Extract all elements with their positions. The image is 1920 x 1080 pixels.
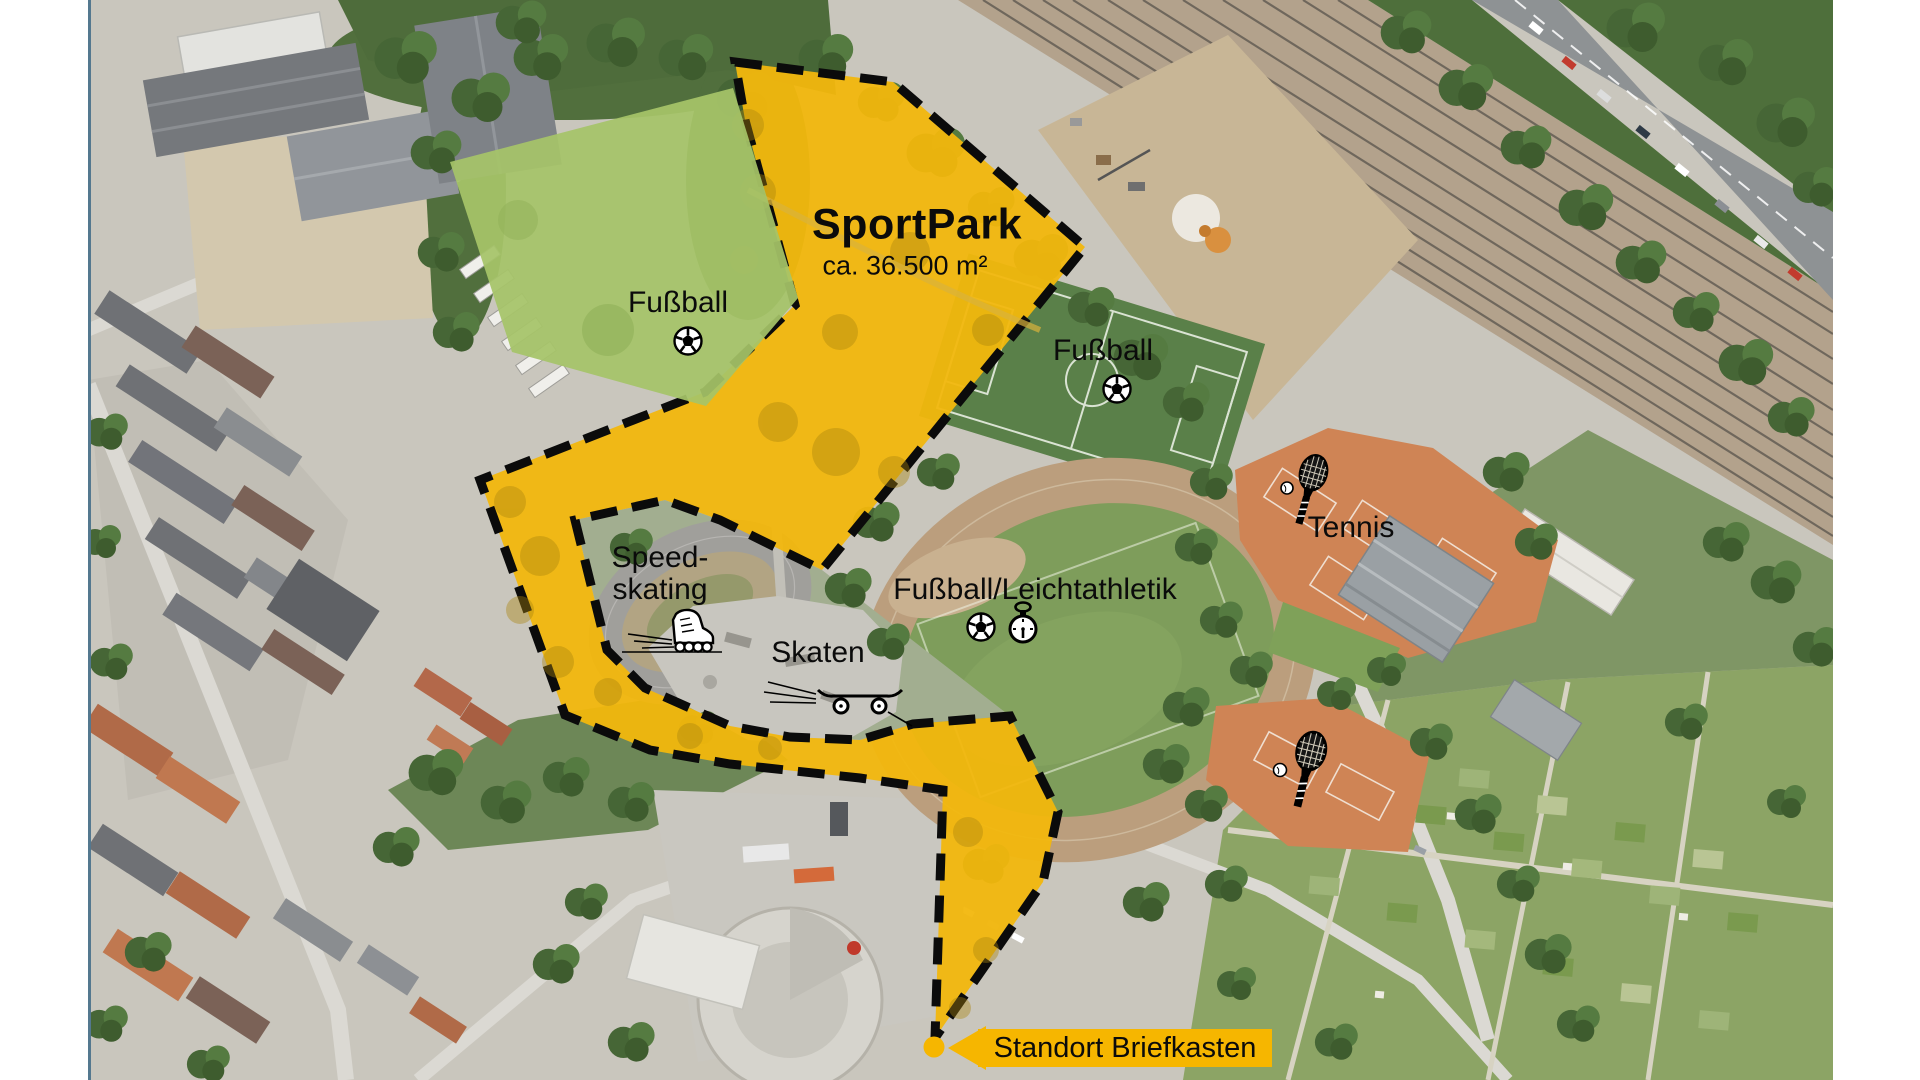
mailbox-callout: Standort Briefkasten: [978, 1029, 1272, 1067]
sportpark-area-label: ca. 36.500 m²: [822, 251, 987, 282]
label-fussball-west: Fußball: [628, 286, 728, 320]
label-tennis: Tennis: [1308, 511, 1395, 545]
soccer-ball-icon: [968, 614, 995, 641]
label-stadium: Fußball/Leichtathletik: [893, 573, 1176, 607]
label-speedskating-line1: Speed-: [612, 542, 709, 574]
soccer-ball-icon: [1104, 376, 1131, 403]
aerial-map: SportPark ca. 36.500 m² Fußball Fußball …: [88, 0, 1833, 1080]
label-speedskating-line2: skating: [612, 574, 709, 606]
screenshot: SportPark ca. 36.500 m² Fußball Fußball …: [0, 0, 1920, 1080]
sportpark-title: SportPark: [812, 201, 1022, 250]
location-dot: [924, 1037, 945, 1058]
label-skaten: Skaten: [771, 636, 864, 670]
map-border: [88, 0, 91, 1080]
soccer-ball-icon: [675, 328, 702, 355]
aerial-scene: [88, 0, 1833, 1080]
label-fussball-east: Fußball: [1053, 334, 1153, 368]
label-speedskating: Speed- skating: [612, 542, 709, 606]
